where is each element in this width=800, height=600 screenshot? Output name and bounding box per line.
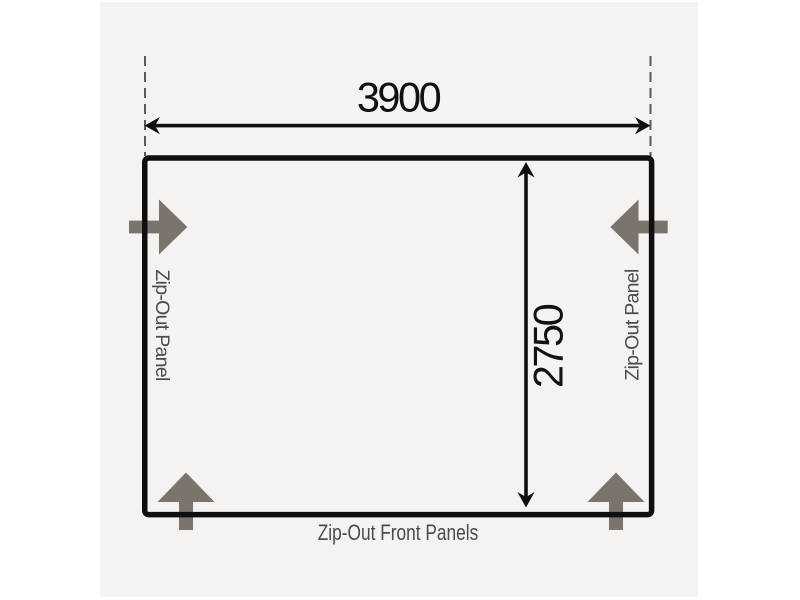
svg-text:Zip-Out Front Panels: Zip-Out Front Panels <box>318 521 479 545</box>
svg-text:2750: 2750 <box>525 304 572 388</box>
svg-text:Zip-Out Panel: Zip-Out Panel <box>151 269 173 381</box>
svg-text:Zip-Out Panel: Zip-Out Panel <box>622 269 644 381</box>
svg-text:3900: 3900 <box>357 74 441 121</box>
